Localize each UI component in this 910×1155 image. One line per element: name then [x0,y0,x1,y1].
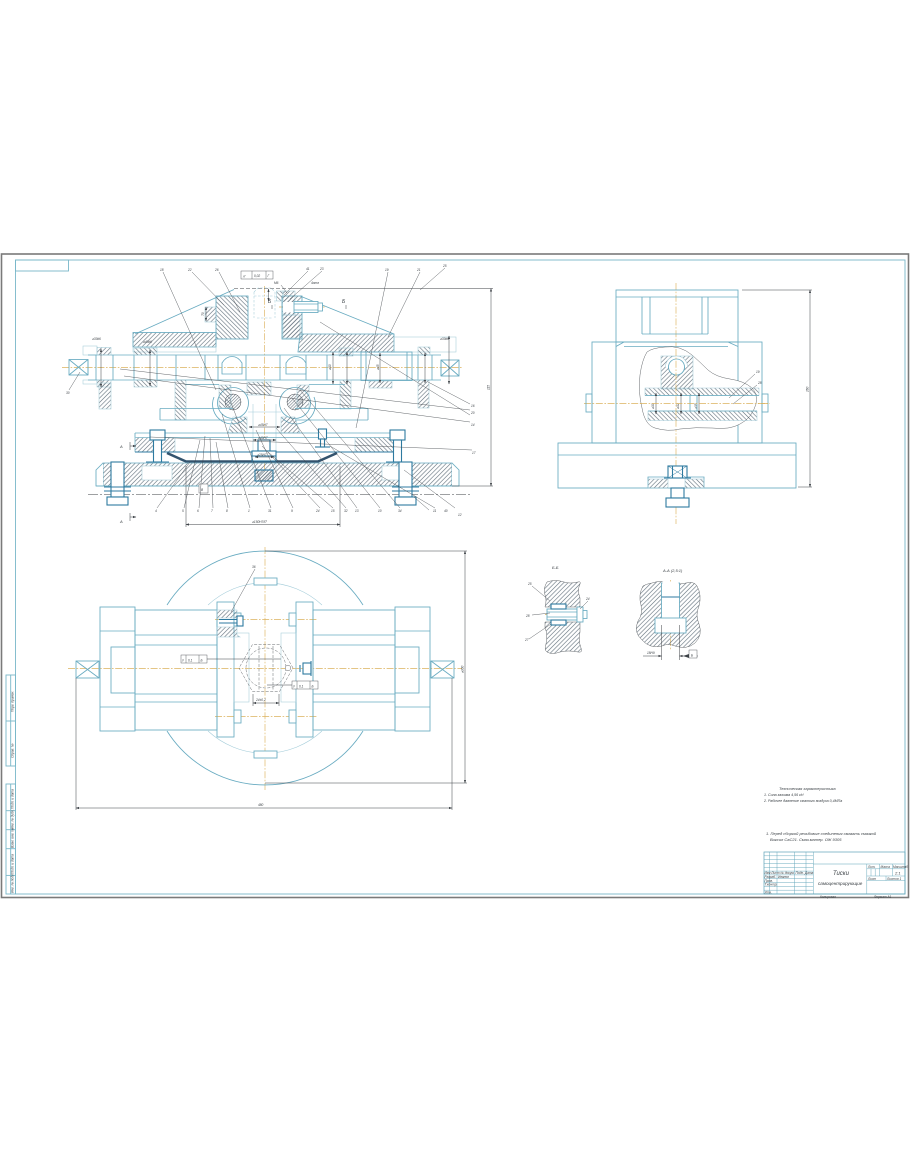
svg-text:13: 13 [355,509,359,513]
svg-text:18: 18 [160,268,164,272]
svg-text:10: 10 [378,509,382,513]
svg-text:⌀32: ⌀32 [676,403,680,409]
svg-text:0,02: 0,02 [254,274,260,278]
svg-text:А: А [119,444,123,449]
svg-text:260: 260 [806,386,810,393]
svg-text:Подп. Дата: Подп. Дата [796,871,814,875]
svg-text:Перв. примен.: Перв. примен. [11,691,15,712]
svg-text:Взам. инв. №: Взам. инв. № [11,828,15,848]
svg-text:⌀45H7: ⌀45H7 [258,423,268,427]
svg-text:70: 70 [201,312,205,316]
svg-text:⌀30k6: ⌀30k6 [440,337,449,341]
svg-text:22: 22 [187,268,192,272]
svg-text:12: 12 [458,513,462,517]
svg-text:⌀150H7/f7: ⌀150H7/f7 [252,520,267,524]
svg-text:25: 25 [442,264,447,268]
svg-text:⌀40k6: ⌀40k6 [143,340,152,344]
svg-text:26: 26 [214,268,219,272]
svg-text:⌀300: ⌀300 [461,666,465,673]
svg-text:19: 19 [756,370,760,374]
svg-text:5: 5 [182,509,184,513]
svg-text:16: 16 [471,404,475,408]
svg-text:28: 28 [525,614,530,618]
svg-text:Тиски: Тиски [833,871,850,877]
svg-text:Г: Г [268,274,270,278]
svg-text:Т.контр.: Т.контр. [765,883,778,887]
svg-text:30: 30 [66,391,70,395]
svg-text:⌀30k6: ⌀30k6 [92,337,101,341]
svg-text:Инв. № подл.: Инв. № подл. [11,873,15,893]
svg-text:Техническая характеристика: Техническая характеристика [779,786,836,791]
svg-text:115: 115 [487,385,491,390]
svg-text:самоцентрирующие: самоцентрирующие [818,881,863,886]
svg-text:14: 14 [471,423,475,427]
svg-text:Справ. №: Справ. № [11,743,15,758]
svg-text:17: 17 [472,451,476,455]
svg-text:M6: M6 [274,281,279,285]
svg-text:А: А [119,519,123,524]
svg-text:Копировал: Копировал [820,895,836,899]
svg-text:9: 9 [291,509,293,513]
svg-text:2. Рабочее давление сжатого во: 2. Рабочее давление сжатого воздуха 0,4М… [763,799,842,803]
svg-text:Подп. и дата: Подп. и дата [11,789,15,809]
svg-text:24±0,2: 24±0,2 [255,698,266,702]
svg-text:Лит.: Лит. [867,865,876,869]
svg-text:0,1: 0,1 [188,659,193,663]
svg-text:0,1: 0,1 [299,685,304,689]
svg-text:23: 23 [319,267,324,271]
svg-text:Утв.: Утв. [765,890,772,894]
svg-text:Б: Б [312,685,314,689]
svg-text:1: 1 [248,509,250,513]
svg-text:Формат А1: Формат А1 [874,895,892,899]
svg-text:⌀30: ⌀30 [651,403,655,409]
svg-text:32: 32 [344,509,348,513]
svg-text:1. Перед сборкой резьбовые сое: 1. Перед сборкой резьбовые соединения см… [766,831,877,836]
svg-text:2:1: 2:1 [894,871,901,876]
svg-text:31: 31 [268,509,272,513]
svg-text:25: 25 [527,582,532,586]
svg-text:Иванов: Иванов [778,875,789,879]
svg-text:24: 24 [585,597,590,601]
svg-text:28: 28 [757,381,762,385]
svg-text:4: 4 [155,509,157,513]
svg-text:Б: Б [201,659,203,663]
svg-text:Масштаб: Масштаб [893,865,908,869]
svg-text:15: 15 [331,509,335,513]
svg-text:8: 8 [226,509,228,513]
svg-text:⌀45: ⌀45 [376,364,380,370]
svg-text:⌀25H7: ⌀25H7 [257,453,267,457]
svg-text:21: 21 [416,268,421,272]
svg-text:480: 480 [258,803,264,807]
svg-text:40: 40 [444,509,448,513]
svg-text:Б: Б [691,654,693,658]
svg-text:6: 6 [197,509,199,513]
svg-text:Лист: Лист [867,877,877,881]
svg-text:36: 36 [252,565,256,569]
svg-text:4отв: 4отв [311,281,319,285]
svg-text:27: 27 [524,638,529,642]
svg-text:34: 34 [398,509,402,513]
svg-text:⌀40H7: ⌀40H7 [258,436,268,440]
svg-text:1. Сила зажима 4,56 кН: 1. Сила зажима 4,56 кН [764,793,804,797]
svg-text:24: 24 [315,509,320,513]
svg-text:Листов 1: Листов 1 [886,877,901,881]
svg-text:18H9: 18H9 [647,651,655,655]
svg-text:А-А (2,5:1): А-А (2,5:1) [662,568,683,573]
svg-text:20: 20 [470,411,475,415]
svg-text:Б-Б: Б-Б [552,565,559,570]
svg-text:Масса: Масса [881,865,891,869]
svg-text:41: 41 [306,267,310,271]
svg-text:7: 7 [211,509,213,513]
svg-text:19: 19 [385,268,389,272]
svg-text:Виксил СаС21. Смаз.матер. ОЖ 9: Виксил СаС21. Смаз.матер. ОЖ 9305 [770,837,842,842]
svg-text:Подп. и дата: Подп. и дата [11,854,15,874]
svg-text:11: 11 [433,509,437,513]
svg-text:Инв. № дубл.: Инв. № дубл. [11,809,15,829]
svg-text:⌀40: ⌀40 [328,364,332,370]
